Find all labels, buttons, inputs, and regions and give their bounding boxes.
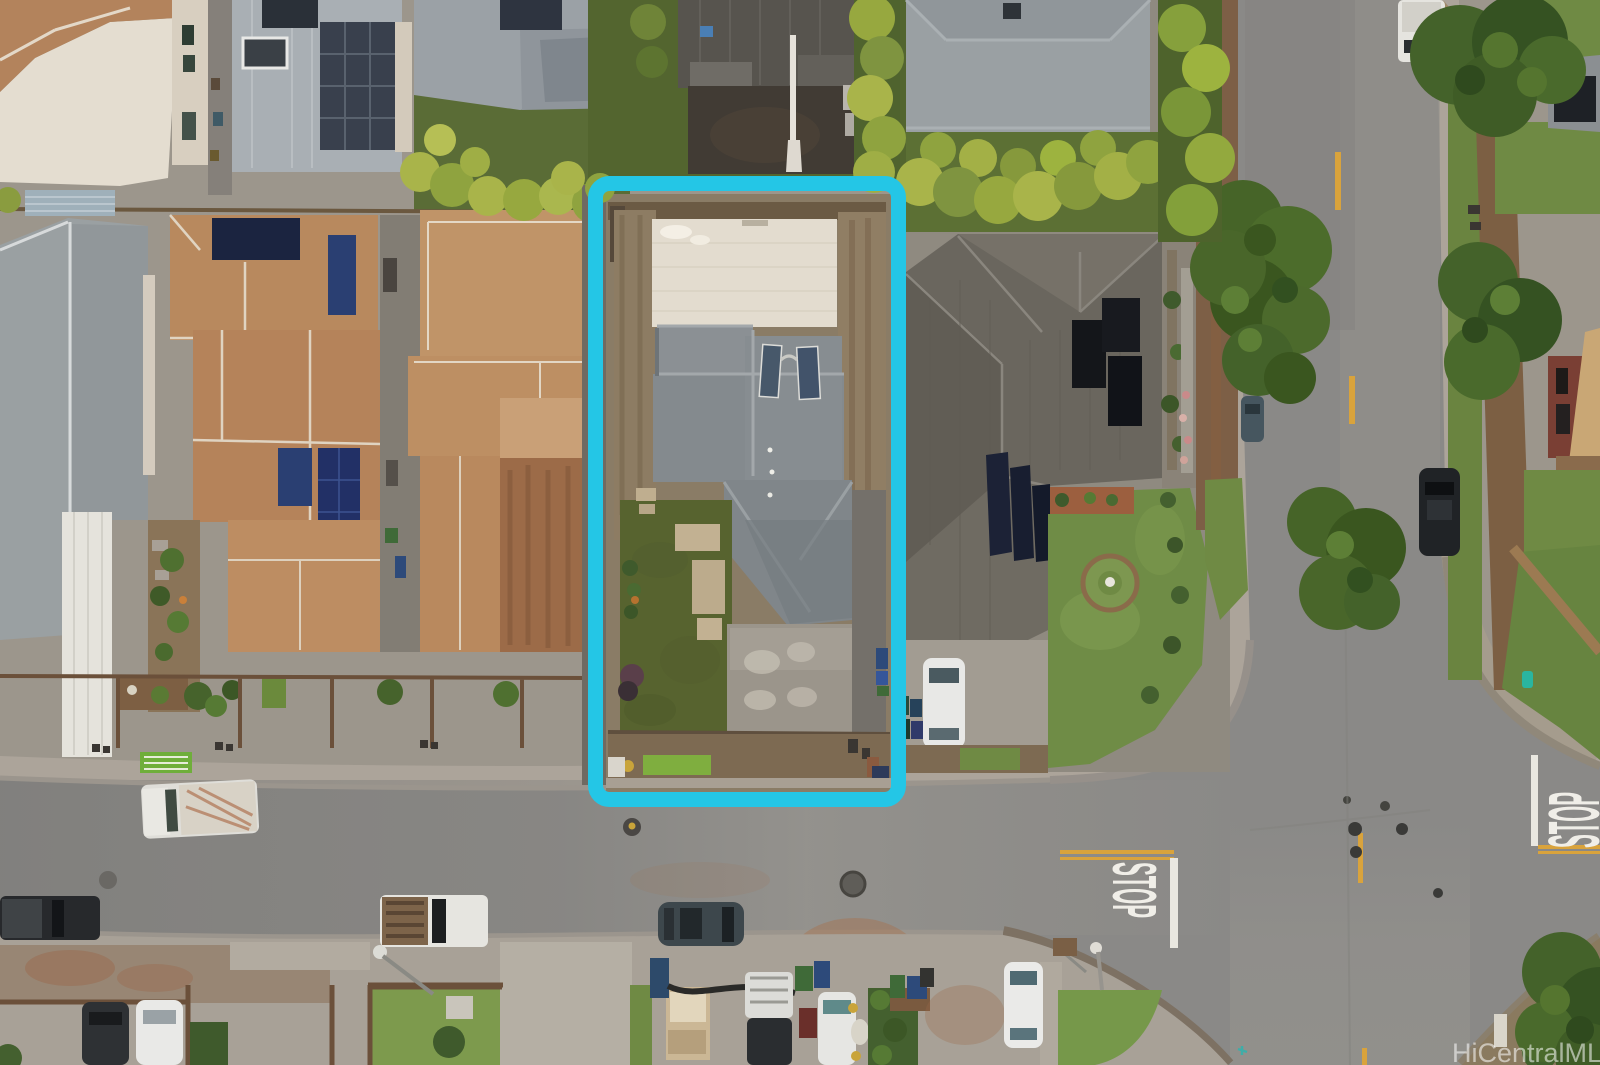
svg-text:STOP: STOP bbox=[1099, 862, 1168, 918]
svg-text:STOP: STOP bbox=[1535, 792, 1600, 848]
svg-text:HiCentralMLS: HiCentralMLS bbox=[1452, 1038, 1600, 1065]
